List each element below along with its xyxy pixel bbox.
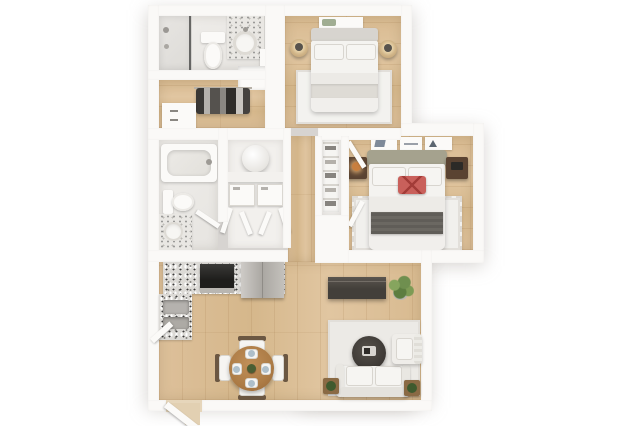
closet-dresser <box>162 103 196 128</box>
wall-primary-right <box>473 123 484 263</box>
bedroom2-pillow-right <box>346 44 376 60</box>
vanity-2-sink <box>164 222 183 241</box>
kitchen-sink-basin-1 <box>163 300 189 314</box>
shower-control-icon <box>164 44 169 49</box>
vanity-1-faucet-icon <box>243 27 248 32</box>
dresser-handle-icon <box>170 110 178 112</box>
wall-living-right <box>421 250 432 411</box>
plant-stand-left-plant-icon <box>326 381 336 391</box>
plate-north-icon <box>248 350 255 357</box>
floor-plan-canvas <box>0 0 640 426</box>
plate-west-icon <box>233 366 240 373</box>
dryer-handle-icon <box>261 187 268 190</box>
hallway-floor <box>288 136 315 262</box>
refrigerator-door-split <box>262 262 263 298</box>
wall-left <box>148 5 159 411</box>
water-heater <box>242 145 269 172</box>
plate-south-icon <box>248 380 255 387</box>
bedroom2-lamp-left-icon <box>295 43 303 51</box>
bedroom2-headboard <box>311 28 378 42</box>
stove <box>200 264 234 290</box>
wall-primary-top <box>401 123 484 136</box>
primary-clock-icon <box>451 162 463 170</box>
table-centerpiece <box>247 364 256 373</box>
wall-bedroom2-left <box>265 5 285 136</box>
vanity-1-sink <box>233 31 257 55</box>
accent-pillow-x-pattern <box>398 176 426 194</box>
plant-stand-right-plant-icon <box>407 383 417 393</box>
wall-kitchen-back <box>148 250 288 262</box>
shower-floor <box>159 16 192 70</box>
sofa-back <box>340 387 406 397</box>
bedroom2-blanket-fold <box>311 84 378 98</box>
hanging-clothes <box>196 88 250 114</box>
wall-below-closet <box>315 215 349 263</box>
plate-east-icon <box>262 366 269 373</box>
wall-bath1-closet-divider <box>148 70 268 80</box>
washer-handle-icon <box>233 187 240 190</box>
primary-art-glyph-2 <box>404 143 418 145</box>
toilet-1-bowl <box>204 42 222 69</box>
wall-bottom <box>202 400 432 411</box>
shower-head-icon <box>163 27 169 33</box>
wall-bottom-left-of-entry <box>148 400 166 411</box>
wall-bedroom2-right <box>401 5 412 136</box>
bedroom2-art-print <box>322 19 336 26</box>
primary-throw-blanket <box>371 212 443 234</box>
wall-bathroom2-right <box>218 128 228 222</box>
sofa-cushion-left <box>346 366 373 386</box>
potted-plant <box>386 274 414 302</box>
bathtub-basin <box>167 150 211 176</box>
toilet-2-bowl <box>172 193 194 211</box>
wall-mid-band-east <box>318 128 401 140</box>
bedroom2-lamp-right-icon <box>384 44 392 52</box>
wall-primary-bottom <box>338 250 484 263</box>
sofa-cushion-right <box>375 366 402 386</box>
dresser-handle-icon <box>170 119 178 121</box>
tv-console-top-line <box>328 281 386 282</box>
closet-items <box>325 146 336 206</box>
primary-art-frame-3 <box>425 137 452 150</box>
bathtub-faucet-icon <box>206 159 212 165</box>
shower-glass-panel <box>189 16 191 70</box>
primary-art-glyph-1b <box>374 140 385 147</box>
stove-front-trim <box>200 288 234 293</box>
armchair-cushion <box>396 338 413 360</box>
wall-laundry-right <box>283 128 291 248</box>
laundry-shelf <box>228 172 283 182</box>
bedroom2-pillow-left <box>314 44 344 60</box>
armchair-back <box>414 334 422 364</box>
tray-item-icon <box>364 348 370 354</box>
